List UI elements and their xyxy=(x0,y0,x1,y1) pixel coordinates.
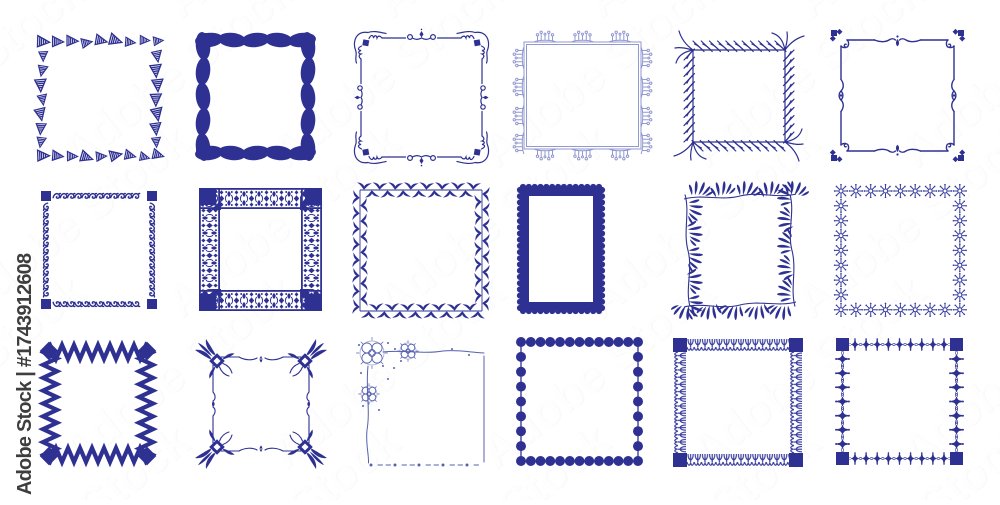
svg-text:Adobe Stock | #1743912608: Adobe Stock | #1743912608 xyxy=(14,253,36,495)
